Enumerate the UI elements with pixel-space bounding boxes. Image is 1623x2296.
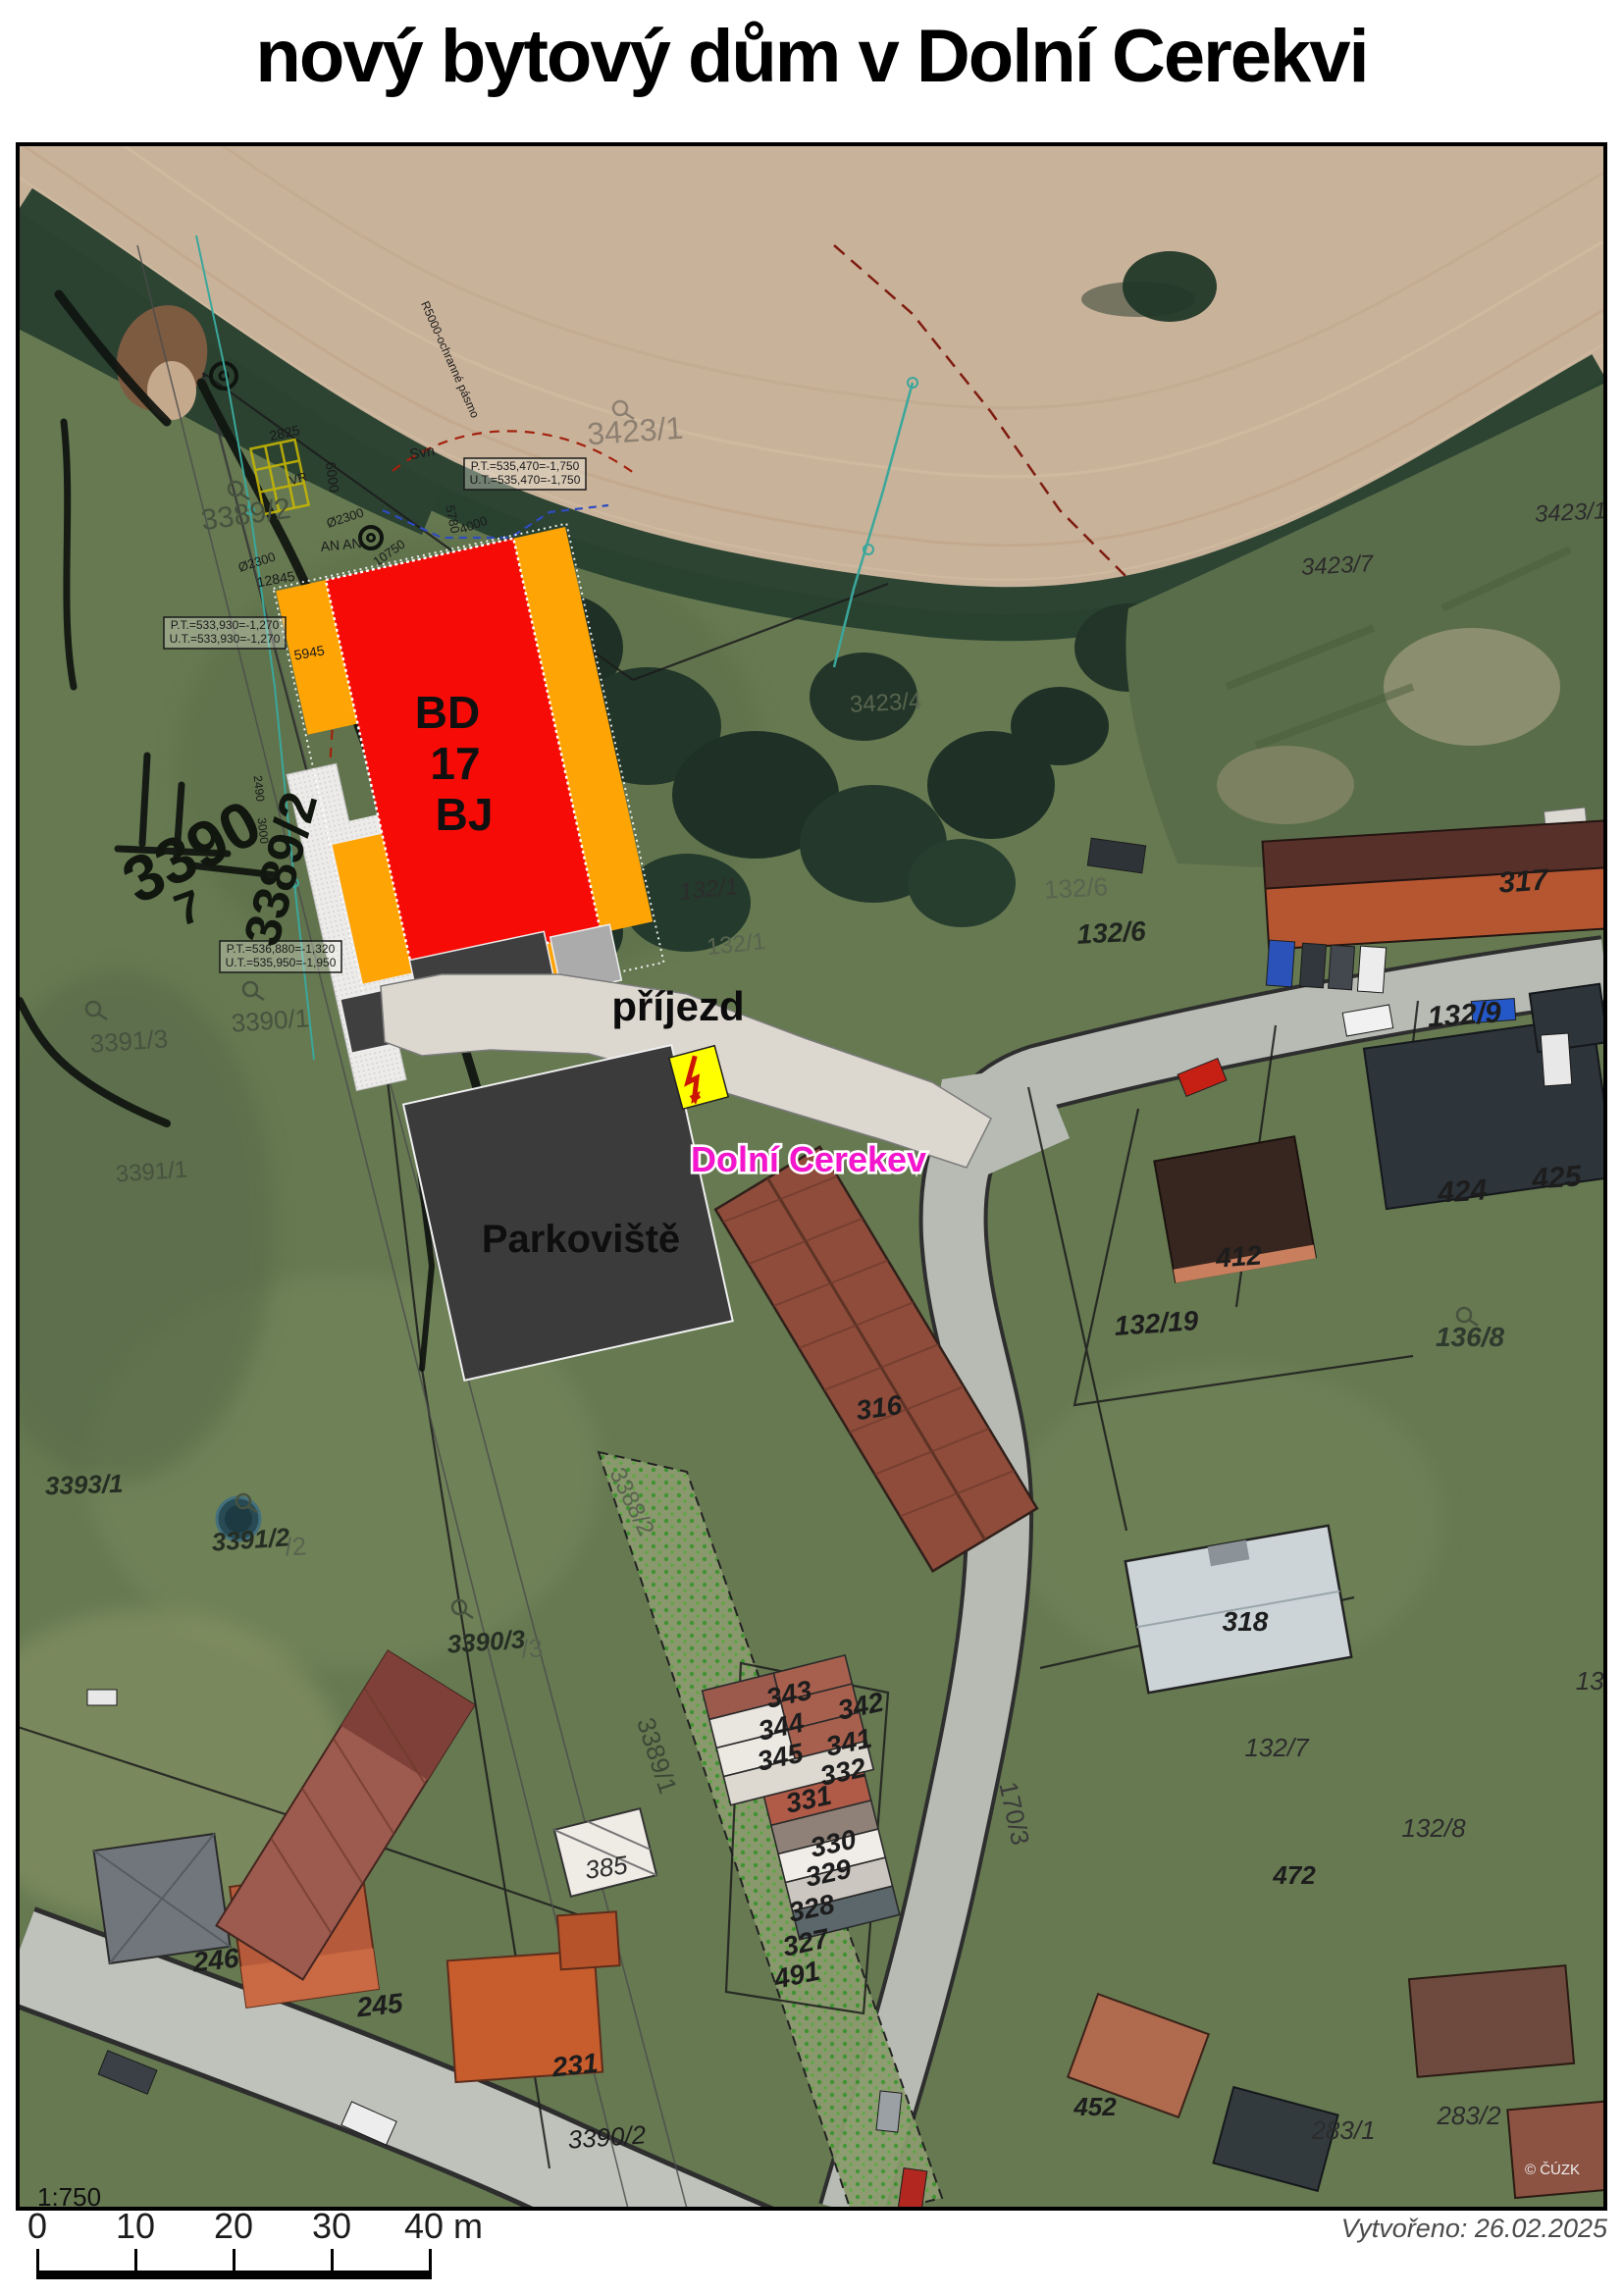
parcel-label: 424	[1436, 1174, 1489, 1210]
parcel-label: 231	[550, 2048, 600, 2083]
scale-tick	[36, 2249, 39, 2272]
parcel-label: 132/6	[1076, 915, 1147, 950]
parcel-label: 317	[1497, 863, 1550, 900]
scale-tick	[331, 2249, 334, 2272]
parcel-label: 132/9	[1427, 996, 1503, 1033]
parcel-label: 245	[354, 1988, 404, 2023]
parcel-label: 136/8	[1436, 1322, 1504, 1352]
level-label: U.T.=535,470=-1,750	[470, 473, 581, 487]
scale-tick	[233, 2249, 236, 2272]
parcel-label: 472	[1272, 1860, 1316, 1890]
site-plan-page: nový bytový dům v Dolní Cerekvi	[0, 0, 1623, 2296]
parcel-label: 425	[1530, 1160, 1584, 1196]
driveway-label: příjezd	[611, 983, 744, 1029]
parcel-label: 318	[1223, 1606, 1269, 1637]
parcel-label: 3391/1	[115, 1156, 188, 1187]
parcel-label: 452	[1073, 2092, 1117, 2121]
field-parcel-label: 3423/1	[586, 410, 684, 452]
parcel-label: 3391/3	[89, 1023, 169, 1058]
level-label: P.T.=535,470=-1,750	[471, 459, 580, 473]
scale-bar	[36, 2270, 432, 2279]
parking-label: Parkoviště	[482, 1218, 680, 1261]
parcel-label: /2	[285, 1531, 308, 1561]
parcel-label: 3423/1	[1534, 497, 1607, 528]
dimension-label: 2490	[251, 775, 268, 803]
parcel-label: 132/19	[1114, 1305, 1200, 1341]
parcel-label: 132/7	[1244, 1733, 1310, 1762]
parcel-label: 246	[190, 1943, 240, 1978]
level-label: P.T.=536,880=-1,320	[227, 942, 336, 956]
aerial-photo: 3423/13389/23390/13391/33391/13393/13391…	[0, 5, 1623, 2296]
parcel-label: 3390/3	[446, 1624, 527, 1659]
dimension-label: 3000	[255, 817, 272, 845]
village-label: Dolní Cerekev	[691, 1139, 926, 1179]
parcel-label: 3423/7	[1300, 550, 1375, 581]
parcel-label: 136/	[1576, 1666, 1623, 1696]
building-label-line: BD	[415, 687, 480, 738]
watermark: © ČÚZK	[1525, 2162, 1580, 2178]
parcel-label: 412	[1214, 1239, 1263, 1273]
level-label: U.T.=535,950=-1,950	[226, 956, 337, 969]
scale-tick-label: 40 m	[404, 2206, 483, 2247]
building-label-line: BJ	[436, 789, 494, 840]
scale-tick-label: 0	[27, 2206, 47, 2247]
level-label: U.T.=533,930=-1,270	[170, 632, 281, 646]
scale-tick-label: 20	[214, 2206, 253, 2247]
parcel-label: 3390/1	[231, 1003, 310, 1037]
parcel-label: 132/8	[1401, 1813, 1466, 1843]
parcel-label: 316	[854, 1389, 904, 1426]
scale-tick-label: 10	[116, 2206, 155, 2247]
scale-tick-label: 30	[312, 2206, 351, 2247]
building-label-line: 17	[430, 738, 480, 789]
parcel-label: 283/1	[1310, 2115, 1375, 2145]
parcel-label: 283/2	[1436, 2101, 1501, 2130]
parcel-label: 3390/2	[567, 2119, 648, 2155]
level-label: P.T.=533,930=-1,270	[171, 618, 280, 632]
scale-tick	[429, 2249, 432, 2272]
house-246	[94, 1834, 231, 1963]
scale-tick	[134, 2249, 137, 2272]
created-date: Vytvořeno: 26.02.2025	[1341, 2214, 1607, 2244]
parcel-label: 3423/4	[849, 688, 922, 718]
parcel-label: 132/6	[1043, 871, 1109, 904]
parcel-label: 3391/2	[211, 1522, 291, 1557]
site-plan-map: 3423/13389/23390/13391/33391/13393/13391…	[0, 0, 1623, 2296]
parcel-label: 385	[583, 1850, 630, 1885]
parcel-label: /3	[521, 1633, 545, 1663]
parcel-label: 3393/1	[44, 1469, 124, 1501]
